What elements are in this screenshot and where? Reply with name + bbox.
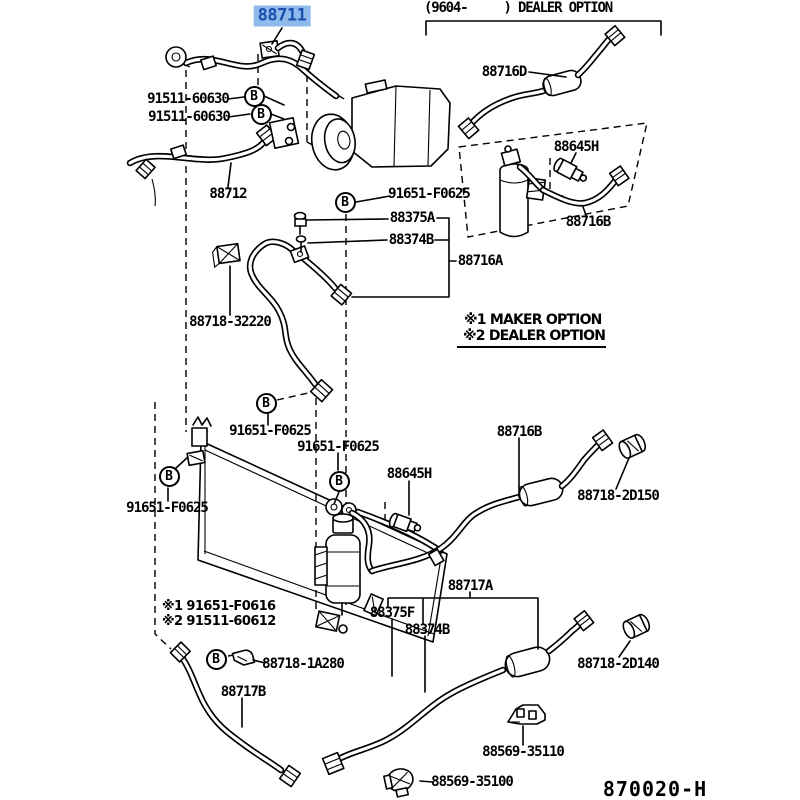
part-label-88712[interactable]: 88712 [209, 187, 246, 201]
diagram-line-art [0, 0, 800, 800]
diagram-code: 870020-H [603, 779, 707, 799]
note-dealer-option: ※2 DEALER OPTION [463, 329, 605, 343]
bolt-symbol-3: B [335, 192, 356, 213]
part-label-91511-60630-2[interactable]: 91511-60630 [148, 110, 230, 124]
part-label-88374b-1[interactable]: 88374B [389, 233, 434, 247]
part-label-88716d[interactable]: 88716D [482, 65, 527, 79]
dealer-option-section-art [458, 26, 628, 237]
part-label-88645h-mid[interactable]: 88645H [387, 467, 432, 481]
clip-88569-35100 [383, 767, 416, 799]
part-label-88718-1a280[interactable]: 88718-1A280 [262, 657, 344, 671]
part-label-88645h-top[interactable]: 88645H [554, 140, 599, 154]
grommet-88718-2d150 [617, 433, 648, 460]
part-label-88716b-top[interactable]: 88716B [566, 215, 611, 229]
bolt-symbol-7: B [206, 649, 227, 670]
clip-88569-35110 [508, 705, 545, 724]
note-maker-option: ※1 MAKER OPTION [464, 313, 602, 327]
parts-diagram-page: 88711 (9604- ) DEALER OPTION 88716D 8864… [0, 0, 800, 800]
clamp-88718-32220 [212, 244, 241, 267]
dealer-option-section-header: (9604- ) DEALER OPTION [424, 1, 612, 15]
note-option-2: ※2 91511-60612 [162, 615, 276, 628]
part-label-88718-2d150[interactable]: 88718-2D150 [577, 489, 659, 503]
part-label-88569-35100[interactable]: 88569-35100 [431, 775, 513, 789]
part-label-88375f[interactable]: 88375F [370, 606, 415, 620]
part-label-88718-2d140[interactable]: 88718-2D140 [577, 657, 659, 671]
part-label-91651-f0625-1[interactable]: 91651-F0625 [388, 187, 470, 201]
part-label-91651-f0625-3[interactable]: 91651-F0625 [297, 440, 379, 454]
part-label-88717a[interactable]: 88717A [448, 579, 493, 593]
notes-underline [457, 346, 606, 348]
part-label-88569-35110[interactable]: 88569-35110 [482, 745, 564, 759]
bolt-symbol-6: B [329, 471, 350, 492]
part-label-91651-f0625-2[interactable]: 91651-F0625 [229, 424, 311, 438]
liquid-pipe-group-88716a [212, 213, 352, 402]
bolt-symbol-4: B [256, 393, 277, 414]
bolt-symbol-5: B [159, 466, 180, 487]
clip-88718-1a280 [232, 649, 254, 667]
part-label-88374b-2[interactable]: 88374B [405, 623, 450, 637]
part-label-88717b[interactable]: 88717B [221, 685, 266, 699]
part-label-88711-highlighted[interactable]: 88711 [254, 6, 311, 27]
bolt-symbol-2: B [251, 104, 272, 125]
part-label-88375a[interactable]: 88375A [390, 211, 435, 225]
part-label-91651-f0625-4[interactable]: 91651-F0625 [126, 501, 208, 515]
part-label-88718-32220[interactable]: 88718-32220 [189, 315, 271, 329]
note-option-1: ※1 91651-F0616 [162, 600, 276, 613]
part-label-91511-60630-1[interactable]: 91511-60630 [147, 92, 229, 106]
pressure-switch-88645h-top [552, 157, 589, 186]
grommet-88718-2d140 [621, 613, 652, 640]
part-label-88716b-mid[interactable]: 88716B [497, 425, 542, 439]
part-label-88716a[interactable]: 88716A [458, 254, 503, 268]
